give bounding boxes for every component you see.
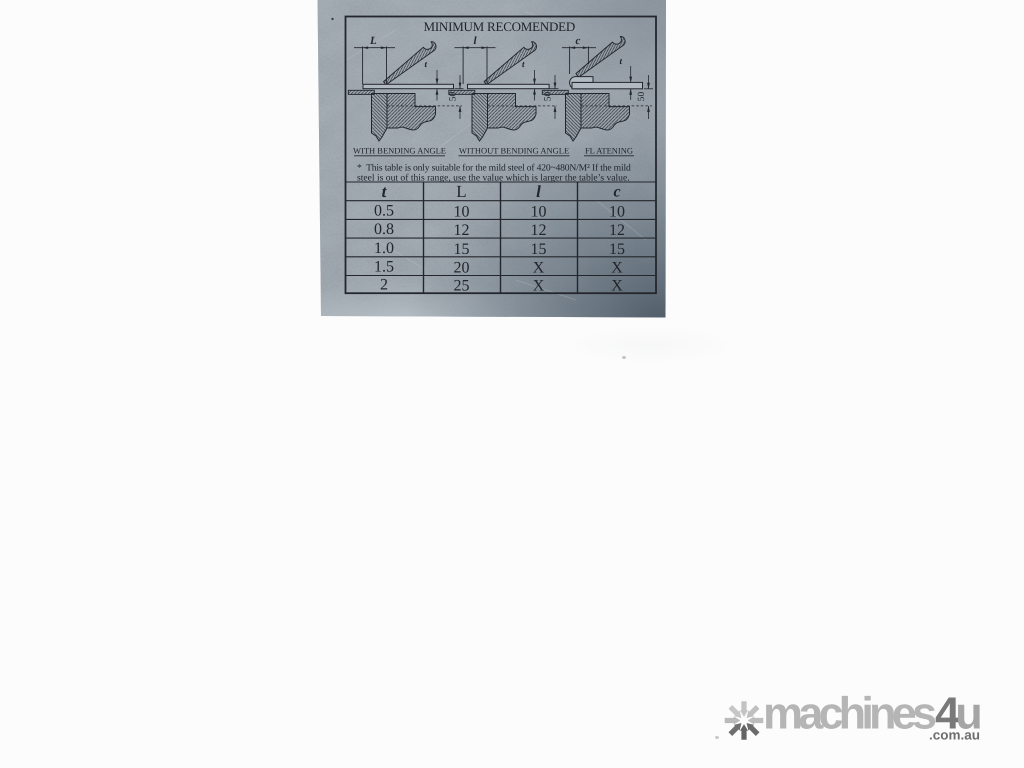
- svg-text:X: X: [611, 260, 623, 277]
- svg-text:machines: machines: [763, 688, 936, 739]
- svg-text:15: 15: [531, 241, 547, 258]
- svg-text:25: 25: [454, 277, 470, 294]
- svg-text:WITH BENDING ANGLE: WITH BENDING ANGLE: [353, 146, 446, 156]
- svg-text:12: 12: [531, 222, 547, 239]
- svg-text:FL ATENING: FL ATENING: [585, 146, 633, 156]
- svg-text:12: 12: [609, 222, 625, 239]
- svg-text:L: L: [456, 182, 466, 201]
- svg-text:X: X: [533, 260, 545, 277]
- svg-text:1.0: 1.0: [374, 240, 394, 257]
- svg-text:50: 50: [637, 92, 647, 102]
- svg-text:l: l: [536, 182, 541, 201]
- svg-text:X: X: [611, 277, 623, 294]
- svg-text:MINIMUM RECOMENDED: MINIMUM RECOMENDED: [424, 19, 577, 34]
- svg-text:c: c: [613, 184, 620, 201]
- svg-text:20: 20: [454, 260, 470, 277]
- svg-text:0.8: 0.8: [374, 221, 394, 238]
- svg-text:15: 15: [609, 241, 625, 258]
- svg-text:12: 12: [454, 222, 470, 239]
- svg-text:10: 10: [531, 203, 547, 220]
- svg-text:10: 10: [609, 203, 625, 220]
- svg-text:2: 2: [380, 276, 388, 293]
- svg-text:.com.au: .com.au: [929, 728, 980, 743]
- svg-text:c: c: [576, 35, 581, 47]
- svg-text:WITHOUT BENDING ANGLE: WITHOUT BENDING ANGLE: [459, 146, 569, 156]
- svg-text:10: 10: [454, 203, 470, 220]
- svg-text:1.5: 1.5: [374, 259, 394, 276]
- svg-text:X: X: [533, 277, 545, 294]
- svg-text:L: L: [369, 35, 377, 47]
- svg-text:0.5: 0.5: [374, 202, 394, 219]
- svg-text:15: 15: [454, 241, 470, 258]
